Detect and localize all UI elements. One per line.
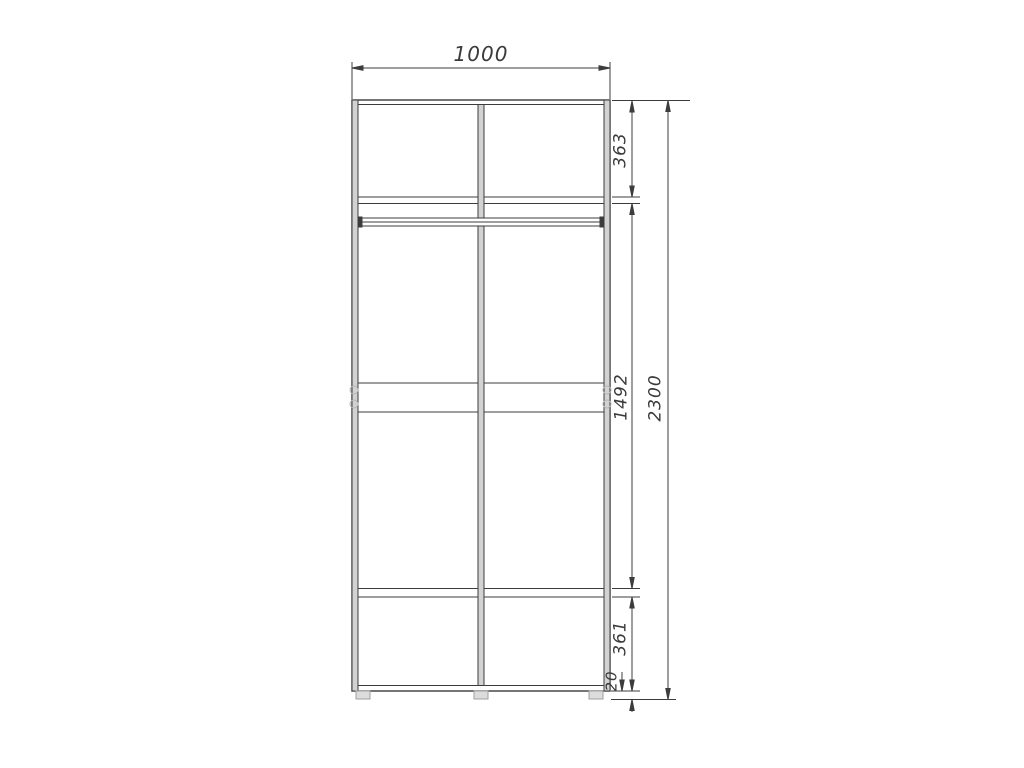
arrow-left-icon	[352, 66, 363, 71]
hanging-rod	[359, 217, 604, 227]
total-height-dimension-label: 2300	[648, 374, 665, 421]
plinth-dimension-label: 20	[605, 670, 620, 691]
top-section-dimension-label: 363	[613, 132, 630, 167]
left-side-panel	[352, 100, 358, 691]
rod-bracket-left	[359, 217, 363, 227]
bottom-section-dimension-label: 361	[613, 620, 630, 655]
center-divider	[478, 105, 484, 686]
foot-right	[589, 691, 603, 699]
feet	[356, 691, 603, 699]
width-dimension-label: 1000	[381, 44, 581, 64]
drawing-canvas: 1000 363 1492 2300 361 20	[0, 0, 1024, 768]
width-dimension	[352, 62, 610, 99]
rod-bracket-right	[600, 217, 604, 227]
foot-left	[356, 691, 370, 699]
middle-section-dimension-label: 1492	[614, 373, 631, 420]
cabinet-body	[350, 100, 611, 699]
wardrobe-drawing	[0, 0, 1024, 768]
right-side-panel	[604, 100, 610, 691]
arrow-right-icon	[599, 66, 610, 71]
foot-center	[474, 691, 488, 699]
total-height-dimension	[666, 101, 670, 700]
